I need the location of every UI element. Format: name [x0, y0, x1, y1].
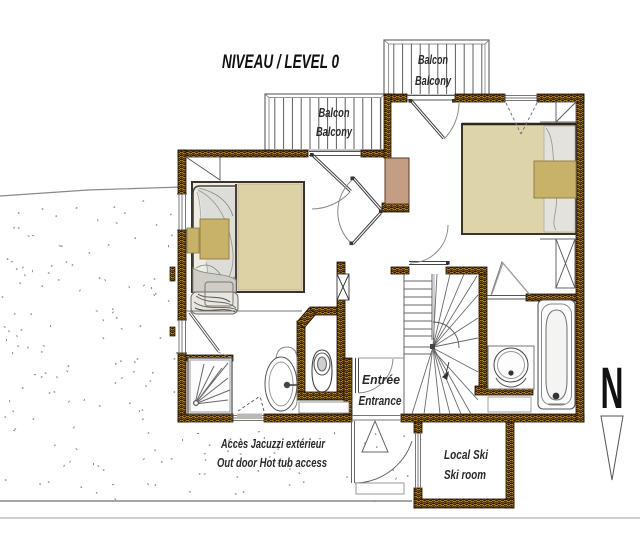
svg-text:Out door Hot tub access: Out door Hot tub access [217, 455, 327, 470]
svg-text:Ski room: Ski room [444, 467, 486, 482]
svg-text:N: N [601, 356, 624, 421]
svg-text:Entrance: Entrance [359, 394, 402, 408]
svg-text:Local Ski: Local Ski [444, 447, 488, 462]
svg-text:Balcon: Balcon [418, 52, 448, 67]
svg-text:NIVEAU / LEVEL 0: NIVEAU / LEVEL 0 [222, 52, 339, 73]
svg-text:Entrée: Entrée [362, 373, 400, 387]
svg-text:Balcon: Balcon [319, 105, 350, 120]
svg-text:Balcony: Balcony [415, 73, 452, 88]
svg-text:Balcony: Balcony [316, 124, 353, 139]
svg-text:Accès Jacuzzi extérieur: Accès Jacuzzi extérieur [220, 436, 325, 451]
